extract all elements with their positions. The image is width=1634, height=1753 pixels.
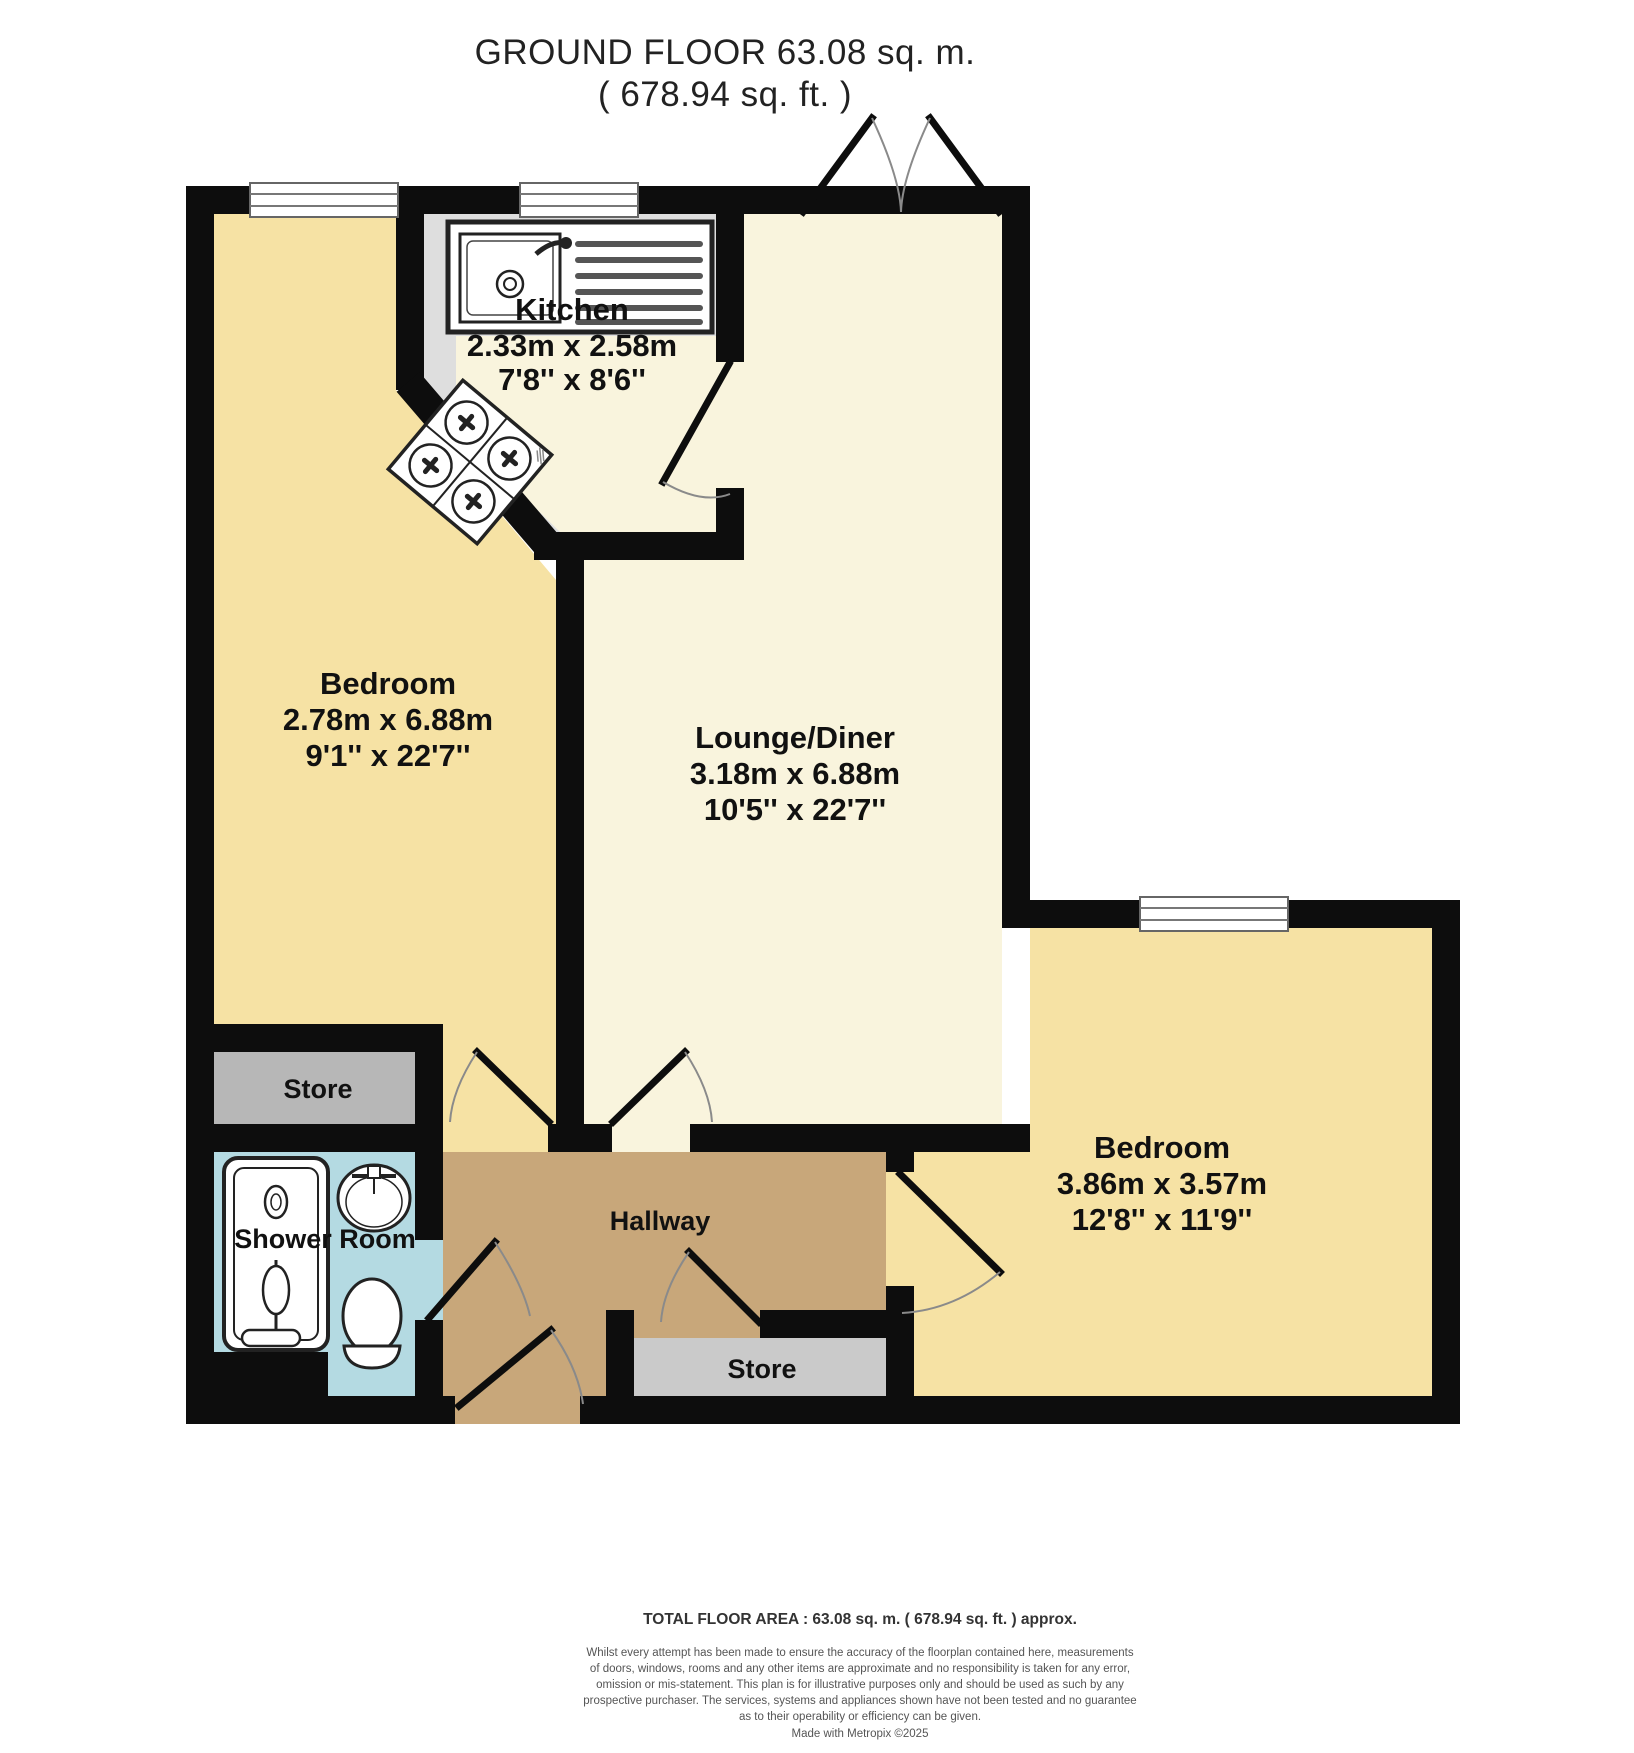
store-upper-label: Store bbox=[283, 1074, 352, 1104]
svg-text:10'5'' x 22'7'': 10'5'' x 22'7'' bbox=[704, 792, 886, 827]
page-title: GROUND FLOOR 63.08 sq. m. bbox=[475, 33, 976, 72]
disclaimer: Whilst every attempt has been made to en… bbox=[583, 1647, 1136, 1723]
svg-text:2.33m x 2.58m: 2.33m x 2.58m bbox=[467, 328, 677, 363]
store-lower-label: Store bbox=[727, 1354, 796, 1384]
svg-text:12'8'' x 11'9'': 12'8'' x 11'9'' bbox=[1072, 1202, 1252, 1237]
doorway-floor bbox=[886, 1172, 914, 1286]
window-icon bbox=[520, 183, 638, 217]
svg-text:Bedroom: Bedroom bbox=[1094, 1130, 1230, 1165]
doorway-floor bbox=[634, 1310, 760, 1338]
doorway-floor bbox=[612, 1124, 690, 1152]
metropix-credit: Made with Metropix ©2025 bbox=[792, 1728, 929, 1740]
svg-text:prospective purchaser. The ser: prospective purchaser. The services, sys… bbox=[583, 1695, 1136, 1707]
hallway-label: Hallway bbox=[610, 1206, 711, 1236]
shower-room-label: Shower Room bbox=[234, 1224, 416, 1254]
window-icon bbox=[250, 183, 398, 217]
doorway-floor bbox=[455, 1396, 580, 1424]
shower-cubicle-icon bbox=[224, 1158, 328, 1350]
lounge-label: Lounge/Diner 3.18m x 6.88m 10'5'' x 22'7… bbox=[690, 720, 900, 827]
doorway-floor bbox=[443, 1124, 548, 1152]
window-icon bbox=[1140, 897, 1288, 931]
svg-text:Whilst every attempt has been: Whilst every attempt has been made to en… bbox=[586, 1647, 1133, 1659]
svg-text:3.86m x 3.57m: 3.86m x 3.57m bbox=[1057, 1166, 1267, 1201]
total-floor-area: TOTAL FLOOR AREA : 63.08 sq. m. ( 678.94… bbox=[643, 1611, 1077, 1628]
floorplan-canvas: GROUND FLOOR 63.08 sq. m. ( 678.94 sq. f… bbox=[0, 0, 1634, 1753]
svg-text:Kitchen: Kitchen bbox=[515, 292, 629, 327]
svg-text:Lounge/Diner: Lounge/Diner bbox=[695, 720, 895, 755]
toilet-icon bbox=[343, 1279, 401, 1368]
svg-text:2.78m x 6.88m: 2.78m x 6.88m bbox=[283, 702, 493, 737]
basin-icon bbox=[338, 1165, 410, 1231]
svg-text:of doors, windows, rooms and a: of doors, windows, rooms and any other i… bbox=[590, 1663, 1130, 1675]
svg-text:as to their operability or eff: as to their operability or efficiency ca… bbox=[739, 1711, 981, 1723]
floorplan-page: GROUND FLOOR 63.08 sq. m. ( 678.94 sq. f… bbox=[0, 0, 1634, 1753]
svg-text:3.18m x 6.88m: 3.18m x 6.88m bbox=[690, 756, 900, 791]
page-subtitle: ( 678.94 sq. ft. ) bbox=[598, 75, 852, 114]
svg-text:9'1'' x 22'7'': 9'1'' x 22'7'' bbox=[306, 738, 471, 773]
svg-text:omission or mis-statement. Thi: omission or mis-statement. This plan is … bbox=[596, 1679, 1124, 1691]
svg-text:7'8'' x 8'6'': 7'8'' x 8'6'' bbox=[498, 362, 646, 397]
svg-text:Bedroom: Bedroom bbox=[320, 666, 456, 701]
